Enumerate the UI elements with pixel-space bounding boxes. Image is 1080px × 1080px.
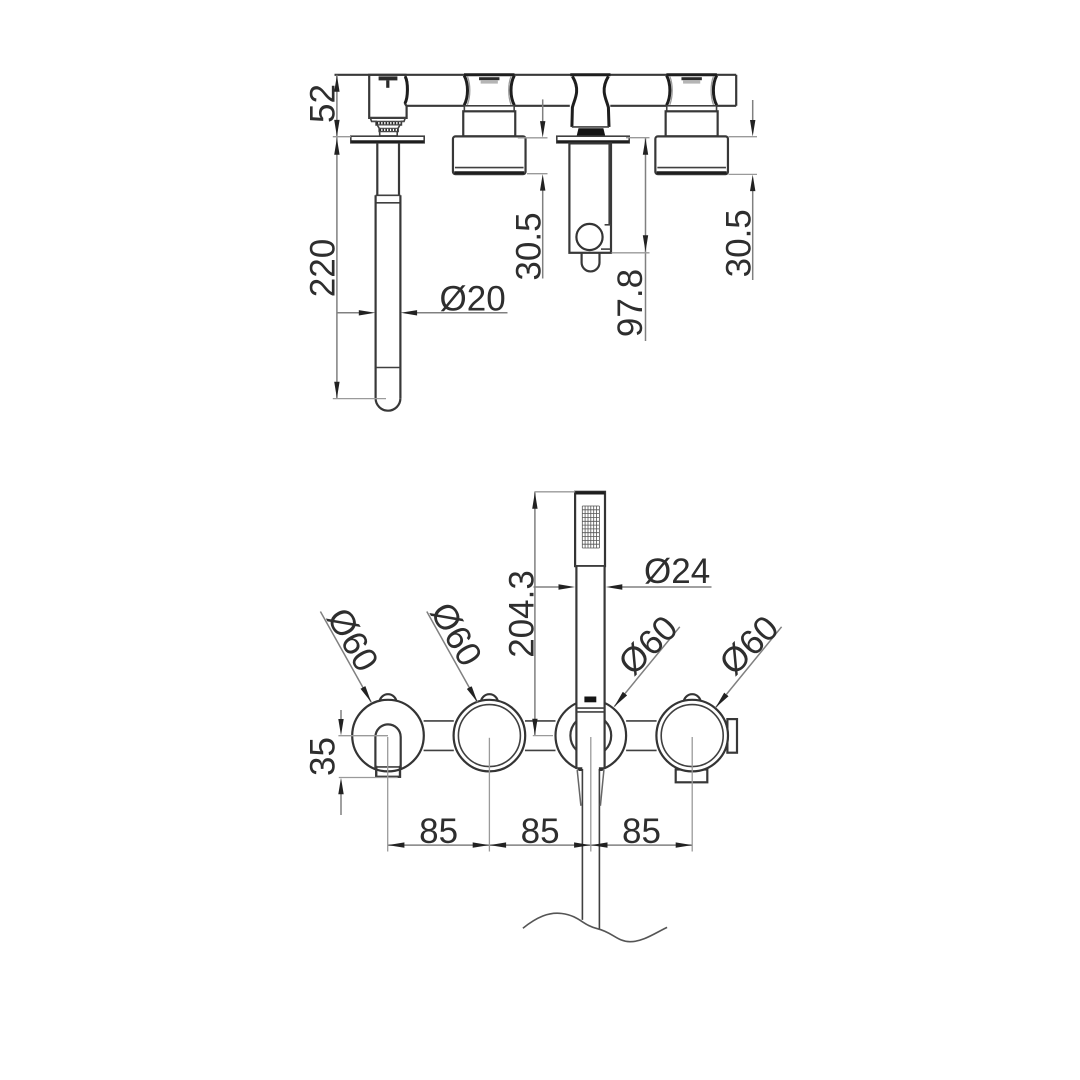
svg-text:220: 220 [304,239,343,297]
svg-text:52: 52 [304,84,343,123]
svg-text:85: 85 [622,812,661,851]
svg-text:Ø20: Ø20 [440,280,506,319]
svg-text:35: 35 [304,737,343,776]
svg-text:85: 85 [521,812,560,851]
svg-text:Ø24: Ø24 [644,552,710,591]
svg-text:204.3: 204.3 [503,570,542,658]
svg-text:97.8: 97.8 [611,269,650,337]
svg-text:85: 85 [419,812,458,851]
svg-text:30.5: 30.5 [510,212,549,280]
svg-text:30.5: 30.5 [720,209,759,277]
